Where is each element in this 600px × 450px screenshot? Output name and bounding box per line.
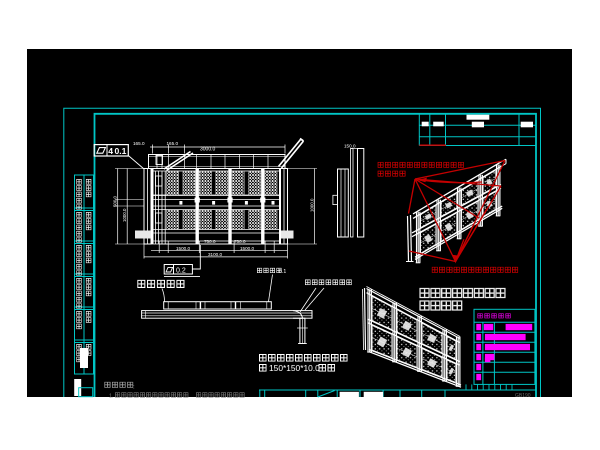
svg-text:0.1: 0.1 xyxy=(115,146,127,156)
svg-text:1.: 1. xyxy=(109,394,114,400)
svg-text:GB190: GB190 xyxy=(515,393,531,399)
svg-text:3100.0: 3100.0 xyxy=(208,252,222,257)
svg-text:165.0: 165.0 xyxy=(167,141,179,146)
svg-text:1500.0: 1500.0 xyxy=(240,246,254,251)
svg-text:0.2: 0.2 xyxy=(176,268,186,275)
svg-text:750.0: 750.0 xyxy=(234,239,246,244)
svg-text:3000.0: 3000.0 xyxy=(200,147,216,153)
svg-text:4: 4 xyxy=(108,146,113,156)
svg-text:500.0: 500.0 xyxy=(113,195,118,207)
svg-text:1500.0: 1500.0 xyxy=(176,246,190,251)
svg-text:0.1: 0.1 xyxy=(279,269,286,275)
svg-text:165.0: 165.0 xyxy=(133,141,145,146)
svg-text:750.0: 750.0 xyxy=(204,239,216,244)
svg-text:150.0: 150.0 xyxy=(344,144,356,149)
svg-text:1000.0: 1000.0 xyxy=(310,198,315,212)
svg-text:1000.0: 1000.0 xyxy=(122,208,127,222)
svg-text:150*150*10.0: 150*150*10.0 xyxy=(269,363,320,373)
